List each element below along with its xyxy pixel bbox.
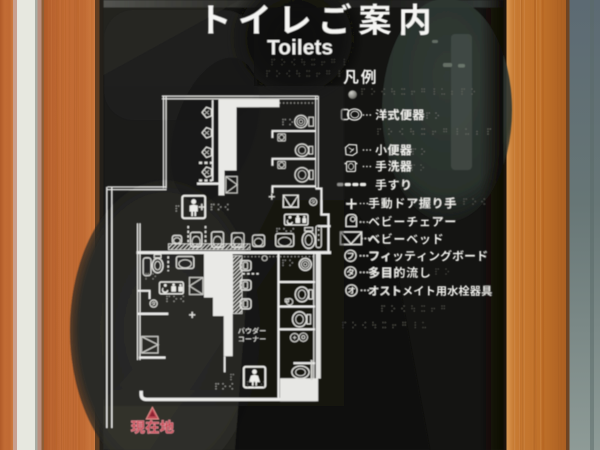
svg-text:Toilets: Toilets	[267, 37, 333, 60]
